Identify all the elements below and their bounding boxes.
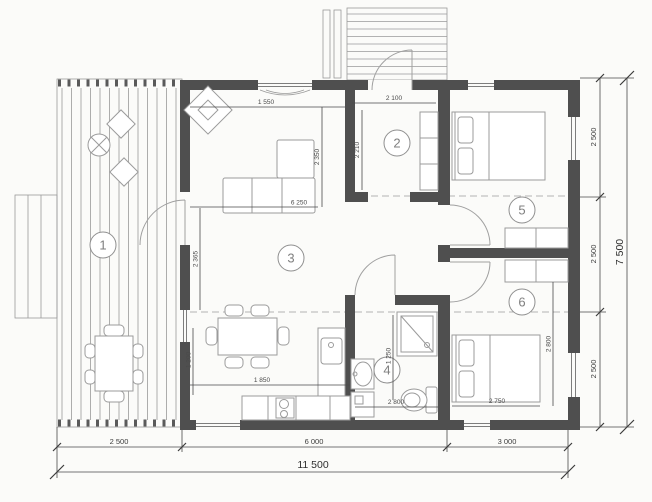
window-swing-mark <box>260 90 310 95</box>
toilet <box>401 387 437 413</box>
dim-entry-width: 2 100 <box>386 95 403 102</box>
floor-plan: 1 2 3 4 5 6 1 550 2 350 6 250 2 100 2 21… <box>0 0 652 502</box>
door-bathroom <box>355 255 395 295</box>
dim-right-top: 2 500 <box>589 128 598 147</box>
door-deck <box>140 200 185 245</box>
sofa-chaise <box>277 140 314 178</box>
dim-right-middle: 2 500 <box>589 245 598 264</box>
dim-right-bottom: 2 500 <box>589 360 598 379</box>
washing-machine <box>351 392 374 417</box>
door-opening-entry-porch <box>368 80 412 90</box>
dim-living-top: 1 550 <box>258 99 275 106</box>
room-label-1: 1 <box>99 238 106 253</box>
deck-steps <box>15 195 57 318</box>
entry-wardrobe <box>420 112 438 190</box>
wall-bath-top <box>395 295 450 305</box>
dim-right-total: 7 500 <box>614 239 626 265</box>
bedroom6-furniture <box>452 260 568 402</box>
dim-bottom-center: 6 000 <box>305 437 324 446</box>
deck-lounge-chair-1 <box>107 110 135 138</box>
wall-bedroom-divider <box>444 248 568 258</box>
shower <box>397 312 437 356</box>
dim-bottom-total: 11 500 <box>297 459 328 471</box>
wall-entry-bottom-left <box>345 192 368 202</box>
room-label-6: 6 <box>518 295 525 310</box>
bed-5 <box>452 112 545 180</box>
wardrobe-6 <box>505 260 568 282</box>
wardrobe-5 <box>505 228 568 248</box>
fireplace-stove <box>184 86 232 134</box>
deck-lounge-chair-2 <box>110 158 138 186</box>
deck-round-table <box>88 134 110 156</box>
porch-post-1 <box>323 10 330 78</box>
dim-entry-depth: 2 210 <box>354 141 361 158</box>
porch-post-2 <box>334 10 341 78</box>
room-label-5: 5 <box>518 203 525 218</box>
dim-bed6-depth: 2 800 <box>546 335 553 352</box>
wall-left <box>180 80 190 430</box>
wall-entry-left <box>345 80 355 202</box>
dim-deck-doorway: 2 365 <box>193 250 200 267</box>
bathroom-sink <box>351 359 374 389</box>
door-bedroom6 <box>450 262 490 302</box>
wall-hall-bottom <box>438 302 450 420</box>
dim-kitchen-width: 1 850 <box>254 377 271 384</box>
room-label-3: 3 <box>287 251 294 266</box>
bottom-dimensions: 2 500 6 000 3 000 11 500 <box>50 427 575 479</box>
dim-living-depth: 2 350 <box>314 148 321 165</box>
right-dimensions: 2 500 2 500 2 500 7 500 <box>580 71 634 434</box>
dim-bath-shower: 1 250 <box>386 347 393 364</box>
dim-bottom-deck: 2 500 <box>110 437 129 446</box>
bedroom5-furniture <box>452 112 568 248</box>
dim-bed6-width: 2 750 <box>489 398 506 405</box>
living-room-furniture <box>184 86 350 420</box>
dining-set <box>206 305 289 368</box>
floor-plan-drawing: 1 2 3 4 5 6 1 550 2 350 6 250 2 100 2 21… <box>0 0 652 502</box>
wall-hall-top <box>438 80 450 205</box>
bed-6 <box>452 335 540 402</box>
dim-kitchen-side: 1 200 <box>186 351 193 368</box>
dim-bath-width: 2 800 <box>388 399 405 406</box>
deck-dining-set <box>85 325 143 402</box>
entry-porch <box>323 8 447 80</box>
door-bedroom5 <box>450 205 490 245</box>
dim-living-width: 6 250 <box>291 200 308 207</box>
room-label-2: 2 <box>393 136 400 151</box>
dim-bottom-right: 3 000 <box>498 437 517 446</box>
